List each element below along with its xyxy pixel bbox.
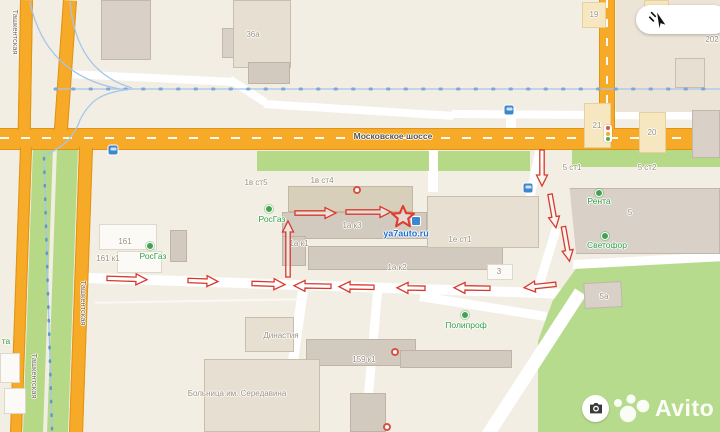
poi-pin-icon: [461, 311, 469, 319]
route-arrow: [188, 273, 218, 288]
building-label: 5 ст1: [563, 164, 582, 172]
route-arrow: [543, 193, 563, 229]
listing-star-marker[interactable]: [389, 203, 417, 231]
street-label-vertical: Ташкентская: [30, 354, 38, 399]
building-label: 161 к1: [96, 255, 120, 263]
route-arrow: [397, 281, 425, 295]
building: [101, 0, 151, 60]
road-label: Московское шоссе: [354, 132, 433, 141]
building-202: [692, 110, 720, 158]
building-label: 3: [497, 268, 501, 276]
green-strip-1: [257, 151, 429, 171]
route-arrow: [535, 150, 549, 186]
street-label-vertical: Ташкентская: [79, 281, 87, 326]
building-label: Больница им. Середавина: [188, 390, 287, 398]
bus-stop-icon: [523, 183, 534, 194]
building-159-k1-annex: [400, 350, 512, 368]
route-arrow: [251, 276, 284, 291]
building-label: 1в ст5: [244, 179, 267, 187]
building: [675, 58, 705, 88]
poi-label: Рента: [587, 197, 610, 206]
building-label: 1в ст4: [310, 177, 333, 185]
building-label: 5 ст2: [638, 164, 657, 172]
green-strip-2: [438, 151, 530, 171]
building-36a: [233, 0, 291, 68]
building-36a-annex: [248, 62, 290, 84]
street-label-vertical: Ташкентская: [11, 10, 19, 55]
building-label: 5а: [600, 293, 609, 301]
building-label: 161: [118, 238, 131, 246]
road-tashkentskaya-top-outer: [18, 0, 33, 130]
avito-logo-icon: [611, 390, 653, 426]
camera-icon: [588, 400, 604, 416]
route-arrow: [281, 221, 295, 277]
parcel-line: [95, 298, 300, 304]
building-label: 1а к3: [342, 222, 361, 230]
poi-pin-icon: [265, 205, 273, 213]
building-label: Династия: [263, 332, 298, 340]
traffic-light-icon: [604, 125, 612, 142]
building-label: 20: [648, 129, 657, 137]
route-arrow: [295, 206, 336, 220]
route-arrow: [293, 279, 330, 294]
avito-watermark: Avito: [582, 390, 714, 426]
poi-label: Светофор: [587, 241, 627, 250]
building-label: 36а: [246, 31, 259, 39]
building-label: 19: [590, 11, 599, 19]
building-5: [560, 188, 720, 254]
org-pin-icon: [391, 348, 399, 356]
building-label: 202: [705, 36, 718, 44]
org-pin-icon: [353, 186, 361, 194]
building: [170, 230, 187, 262]
poi-label: Полипроф: [445, 321, 486, 330]
map-canvas[interactable]: Avito Московское шоссеТашкентскаяТашкент…: [0, 0, 720, 432]
route-arrow: [454, 281, 490, 296]
building-1e-st1: [427, 196, 539, 248]
poi-pin-icon: [595, 189, 603, 197]
road-service-north-a: [70, 70, 235, 86]
building-label: 5: [628, 209, 632, 217]
route-arrow: [338, 280, 373, 295]
road-vertical-mid-top: [428, 150, 438, 192]
building: [350, 393, 386, 432]
building-label: 1е ст1: [448, 236, 471, 244]
drag-cursor-icon: [647, 9, 669, 31]
building-label: 21: [593, 122, 602, 130]
route-arrow: [346, 205, 391, 219]
avito-wordmark: Avito: [655, 395, 714, 422]
poi-label: та: [2, 337, 11, 346]
map-cursor-button[interactable]: [636, 5, 720, 34]
poi-label: РосГаз: [140, 252, 167, 261]
poi-pin-icon: [601, 232, 609, 240]
building: [4, 388, 26, 414]
camera-button[interactable]: [582, 395, 609, 422]
poi-pin-icon: [146, 242, 154, 250]
building-label: 159 к1: [352, 356, 376, 364]
building-label: 1а к2: [387, 264, 406, 272]
road-tashkentskaya-top-inner: [54, 0, 77, 131]
bus-stop-icon: [504, 105, 515, 116]
bus-stop-icon: [108, 145, 119, 156]
route-arrow: [556, 226, 576, 263]
route-arrow: [107, 271, 147, 286]
org-pin-icon: [383, 423, 391, 431]
road-service-north-b: [263, 100, 453, 120]
building: [0, 353, 20, 383]
